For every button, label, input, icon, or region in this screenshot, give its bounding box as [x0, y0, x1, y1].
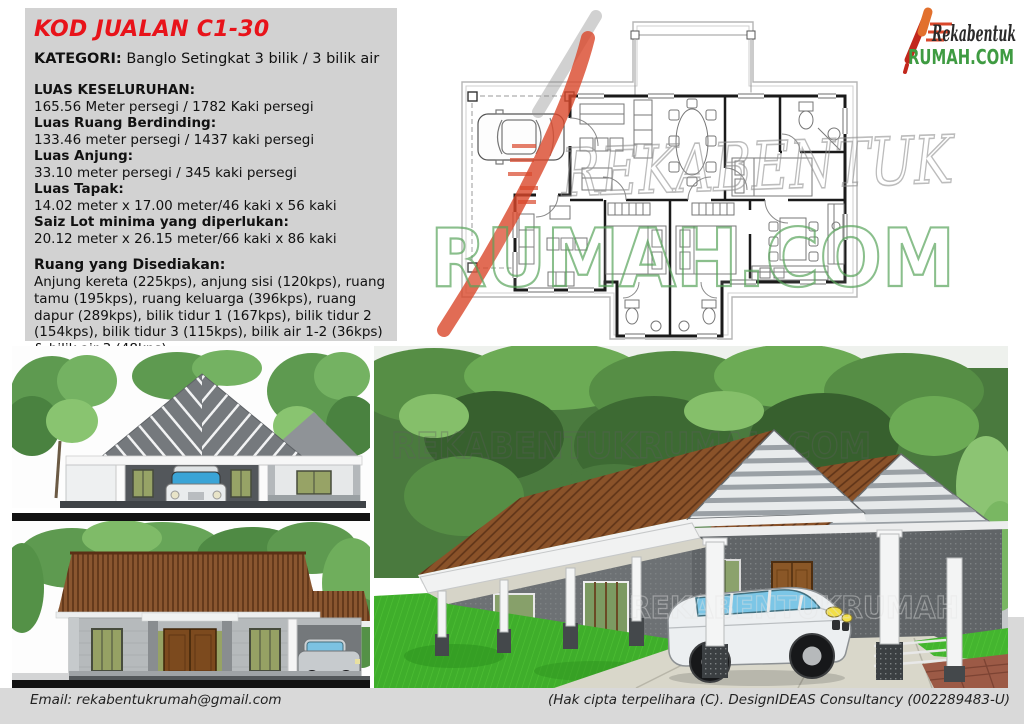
plan-watermark: REKABENTUK RUMAH.COM	[430, 16, 957, 330]
perspective-render: REKABENTUKRUMAH.COM	[374, 346, 1008, 688]
spec-value: 33.10 meter persegi / 345 kaki persegi	[34, 165, 389, 182]
info-panel: KOD JUALAN C1-30 KATEGORI: Banglo Seting…	[25, 8, 397, 341]
spec-label: Luas Tapak:	[34, 181, 389, 198]
logo-text-rumahcom: RUMAH.COM	[908, 45, 1014, 69]
spec-label: Saiz Lot minima yang diperlukan:	[34, 214, 389, 231]
watermark-rumahcom: RUMAH.COM	[430, 212, 955, 305]
brochure-page: KOD JUALAN C1-30 KATEGORI: Banglo Seting…	[0, 0, 1024, 724]
category-label: KATEGORI:	[34, 51, 122, 67]
spec-label: LUAS KESELURUHAN:	[34, 82, 389, 99]
spec-value: 165.56 Meter persegi / 1782 Kaki persegi	[34, 99, 389, 116]
copyright-text: (Hak cipta terpelihara (C). DesignIDEAS …	[548, 692, 1010, 708]
spec-label: Luas Anjung:	[34, 148, 389, 165]
contact-email: Email: rekabentukrumah@gmail.com	[30, 692, 282, 708]
rear-patio	[631, 31, 755, 96]
category-line: KATEGORI: Banglo Setingkat 3 bilik / 3 b…	[34, 51, 389, 67]
letterbox-bar	[12, 680, 370, 688]
render-watermark-bottom: REKABENTUKRUMAH	[629, 591, 959, 626]
company-logo: Rekabentuk RUMAH.COM	[892, 2, 1020, 78]
sale-code-title: KOD JUALAN C1-30	[34, 17, 389, 42]
category-value: Banglo Setingkat 3 bilik / 3 bilik air	[126, 51, 379, 67]
logo-text-rekabentuk: Rekabentuk	[931, 21, 1016, 47]
watermark-rekabentuk: REKABENTUK	[559, 121, 957, 212]
rooms-heading: Ruang yang Disediakan:	[34, 257, 389, 274]
spec-value: 133.46 meter persegi / 1437 kaki persegi	[34, 132, 389, 149]
spec-value: 14.02 meter x 17.00 meter/46 kaki x 56 k…	[34, 198, 389, 215]
side-elevation-render	[12, 513, 370, 688]
letterbox-bar	[12, 513, 370, 521]
footer-band: Email: rekabentukrumah@gmail.com (Hak ci…	[0, 688, 1024, 724]
right-margin-band	[1008, 617, 1024, 688]
front-elevation-render	[12, 346, 370, 508]
spec-value: 20.12 meter x 26.15 meter/66 kaki x 86 k…	[34, 231, 389, 248]
spec-label: Luas Ruang Berdinding:	[34, 115, 389, 132]
